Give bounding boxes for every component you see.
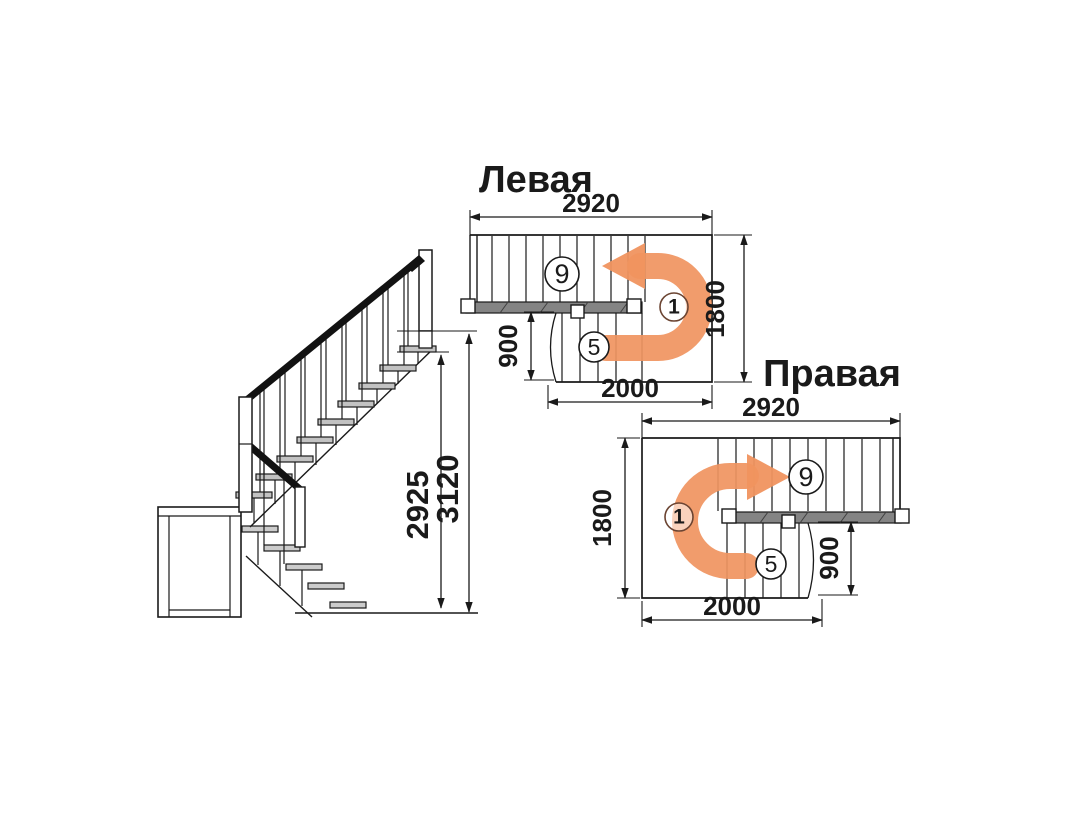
landing-platform-box	[158, 507, 241, 617]
right-dim-lower-width: 900	[814, 536, 844, 579]
left-turn-arrowhead	[602, 243, 645, 289]
right-plan-handrail-bar	[722, 509, 909, 528]
left-dim-side: 1800	[700, 280, 730, 338]
left-plan-view: Левая 9 5 1	[461, 159, 752, 409]
left-plan-handrail-bar	[461, 299, 642, 318]
right-turn-arrowhead	[747, 454, 790, 500]
svg-text:9: 9	[798, 462, 813, 492]
right-dim-lower-length: 2000	[703, 591, 761, 621]
svg-text:1: 1	[673, 506, 685, 529]
elevation-view: 2925 3120	[158, 250, 478, 617]
left-turn-badge: 1	[660, 293, 688, 321]
dim-3120: 3120	[430, 455, 465, 524]
left-upper-steps-badge: 9	[545, 257, 579, 291]
staircase-drawing-page: 2925 3120 Левая 9	[0, 0, 1086, 816]
right-plan-break-line	[808, 523, 814, 598]
lower-rail-post	[295, 487, 305, 547]
svg-text:9: 9	[554, 259, 569, 289]
right-plan-title: Правая	[763, 353, 901, 395]
lower-handrail	[250, 446, 302, 491]
svg-text:1: 1	[668, 296, 680, 319]
svg-text:5: 5	[588, 334, 601, 360]
mid-newel-post	[239, 397, 252, 512]
left-plan-break-line	[551, 313, 557, 382]
main-handrail	[243, 258, 421, 403]
left-dim-width: 2920	[562, 188, 620, 218]
left-dim-lower-length: 2000	[601, 373, 659, 403]
left-lower-steps-badge: 5	[579, 332, 609, 362]
right-plan-dimensions: 2920 1800 900 2000	[587, 392, 900, 627]
right-dim-side: 1800	[587, 489, 617, 547]
right-dim-width: 2920	[742, 392, 800, 422]
right-turn-badge: 1	[665, 503, 693, 531]
right-lower-steps-badge: 5	[756, 549, 786, 579]
balusters	[244, 256, 424, 492]
top-newel-post	[406, 250, 432, 348]
right-upper-steps-badge: 9	[789, 460, 823, 494]
left-dim-lower-width: 900	[493, 324, 523, 367]
staircase-diagram: 2925 3120 Левая 9	[0, 0, 1086, 816]
svg-text:5: 5	[765, 551, 778, 577]
